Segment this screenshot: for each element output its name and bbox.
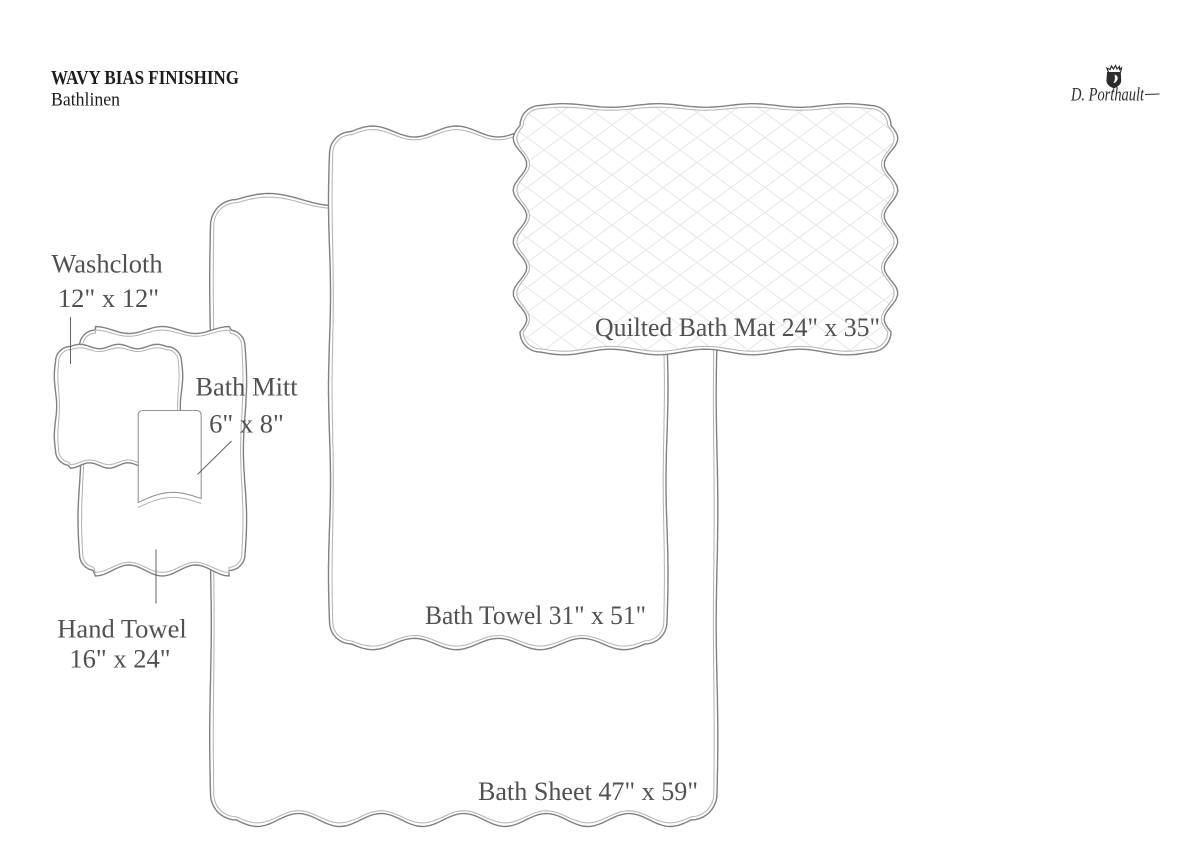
svg-text:WAVY BIAS FINISHING: WAVY BIAS FINISHING (51, 67, 239, 89)
svg-text:Bathlinen: Bathlinen (51, 90, 120, 111)
svg-text:D. Porthault: D. Porthault (1070, 86, 1144, 106)
svg-text:Bath Mitt: Bath Mitt (195, 372, 298, 402)
svg-text:Bath Sheet 47" x 59": Bath Sheet 47" x 59" (478, 776, 698, 806)
svg-text:12" x 12": 12" x 12" (58, 283, 159, 313)
svg-text:Quilted Bath Mat 24" x 35": Quilted Bath Mat 24" x 35" (595, 312, 880, 342)
svg-text:6" x 8": 6" x 8" (209, 409, 284, 439)
svg-text:Washcloth: Washcloth (51, 249, 162, 279)
svg-text:16" x 24": 16" x 24" (69, 644, 170, 674)
svg-text:Hand Towel: Hand Towel (57, 614, 186, 644)
svg-text:Bath Towel 31" x 51": Bath Towel 31" x 51" (425, 600, 646, 630)
